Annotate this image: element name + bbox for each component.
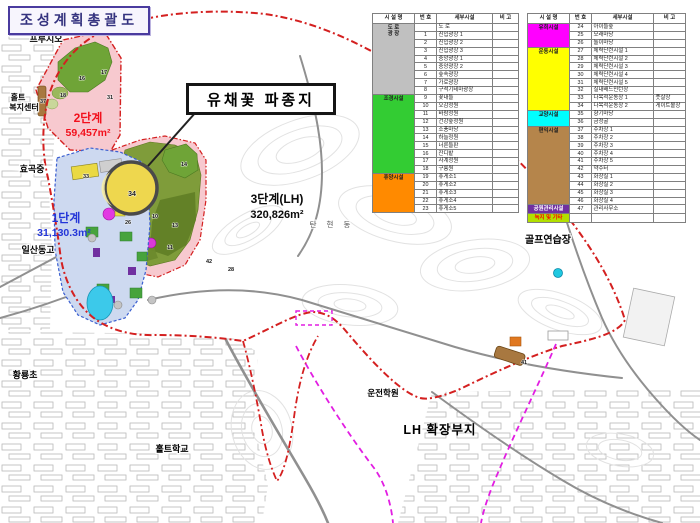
phase3-area-value: 320,826m² [250, 209, 304, 221]
legend-cell [493, 47, 519, 55]
legend-cell: 37 [570, 126, 592, 134]
legend-cell: 건강숲정원 [437, 118, 493, 126]
legend-cell [654, 166, 686, 174]
legend-cell [654, 110, 686, 118]
legend-cell: 43 [570, 173, 592, 181]
legend-cell: 체력단련시설 4 [592, 71, 654, 79]
legend-cell: 화장실 2 [592, 181, 654, 189]
legend-category: 공원관리시설 [528, 205, 570, 214]
legend-cell: 약수터 [592, 166, 654, 174]
label-hyogok-school: 효곡중 [20, 164, 45, 174]
legend-header: 번 호 [570, 14, 592, 24]
zone-number: 11 [167, 245, 173, 251]
legend-cell: 11 [415, 110, 437, 118]
legend-cell: 휴게소3 [437, 189, 493, 197]
legend-cell [654, 214, 686, 223]
legend-cell [654, 55, 686, 63]
legend-cell [493, 197, 519, 205]
legend-cell [493, 158, 519, 166]
legend-cell: 숲속광장 [437, 71, 493, 79]
legend-cell: 39 [570, 142, 592, 150]
legend-cell: 화장실 4 [592, 197, 654, 205]
legend-header: 비 고 [493, 14, 519, 24]
legend-cell [654, 181, 686, 189]
legend-cell [493, 118, 519, 126]
label-holt-school: 홀트학교 [155, 443, 188, 454]
legend-cell [493, 189, 519, 197]
legend-category: 편익시설 [528, 126, 570, 205]
legend-cell: 진입광장 1 [437, 31, 493, 39]
legend-cell [654, 79, 686, 87]
legend-cell: 17 [415, 158, 437, 166]
phase3-name: 3단계(LH) [251, 191, 304, 206]
legend-cell [493, 39, 519, 47]
legend-cell [493, 87, 519, 95]
legend-cell [570, 214, 592, 223]
legend-cell [493, 95, 519, 103]
legend-cell: 오감정원 [437, 102, 493, 110]
legend-header: 세부시설 [592, 14, 654, 24]
legend-cell: 화장실 1 [592, 173, 654, 181]
legend-cell: 30 [570, 71, 592, 79]
legend-category: 교양시설 [528, 110, 570, 126]
legend-cell: 사계정원 [437, 158, 493, 166]
legend-cell: 22 [415, 197, 437, 205]
legend-cell: 8 [415, 87, 437, 95]
legend-cell: 실내배드민턴장 [592, 87, 654, 95]
legend-cell: 6 [415, 71, 437, 79]
legend-cell: 주차장 1 [592, 126, 654, 134]
legend-cell: 휴게소5 [437, 205, 493, 213]
legend-cell: 모래마당 [592, 31, 654, 39]
phase1-area-value: 31,130.3m² [37, 227, 91, 239]
plan-map-page: 30 16 17 18 31 37 33 14 34 26 10 13 11 4… [0, 0, 700, 523]
legend-table-left: 시 설 명번 호세부시설비 고도 로 광 장도 로1진입광장 12진입광장 23… [372, 13, 519, 213]
legend-cell: 휴게소4 [437, 197, 493, 205]
legend-cell [493, 24, 519, 32]
legend-cell: 체력단련시설 3 [592, 63, 654, 71]
legend-cell: 32 [570, 87, 592, 95]
legend-cell: 게이트볼장 [654, 102, 686, 110]
legend-cell: 1 [415, 31, 437, 39]
legend-cell: 23 [415, 205, 437, 213]
legend-cell: 26 [570, 39, 592, 47]
legend-cell: 44 [570, 181, 592, 189]
legend-cell: 13 [415, 126, 437, 134]
legend-cell: 체력단련시설 1 [592, 47, 654, 55]
label-hwangnyong-school: 황룡초 [13, 369, 39, 380]
legend-cell: 5 [415, 63, 437, 71]
legend-cell: 3 [415, 47, 437, 55]
legend-cell: 금정굴 [592, 118, 654, 126]
legend-cell [493, 173, 519, 181]
legend-cell: 다목적운동장 2 [592, 102, 654, 110]
legend-cell: 27 [570, 47, 592, 55]
legend-cell: 놀이마당 [592, 39, 654, 47]
legend-cell: 2 [415, 39, 437, 47]
legend-cell: 하늘정원 [437, 134, 493, 142]
phase2-name: 2단계 [74, 110, 103, 125]
legend-cell: 20 [415, 181, 437, 189]
zone-number: 33 [83, 174, 89, 180]
legend-cell [654, 118, 686, 126]
legend-cell: 풋살장 [654, 95, 686, 103]
legend-cell [493, 79, 519, 87]
legend-cell [654, 173, 686, 181]
legend-cell: 36 [570, 118, 592, 126]
legend-cell: 7 [415, 79, 437, 87]
zone-number: 41 [521, 360, 527, 366]
facility-legend: 시 설 명번 호세부시설비 고도 로 광 장도 로1진입광장 12진입광장 23… [372, 13, 686, 223]
zone-number: 31 [107, 95, 113, 101]
legend-cell: 33 [570, 95, 592, 103]
legend-cell [654, 150, 686, 158]
legend-cell: 21 [415, 189, 437, 197]
legend-cell: 중앙광장 2 [437, 63, 493, 71]
legend-cell [493, 166, 519, 174]
legend-cell: 주차장 5 [592, 158, 654, 166]
legend-cell: 도 로 [437, 24, 493, 32]
legend-cell [654, 71, 686, 79]
label-driving-school: 운전학원 [367, 388, 398, 398]
legend-category: 녹지 및 기타 [528, 214, 570, 223]
lh-expansion-label: LH 확장부지 [403, 422, 476, 437]
zone-number: 17 [101, 70, 107, 76]
legend-cell [493, 31, 519, 39]
legend-table-right: 시 설 명번 호세부시설비 고유희시설24아이들숲25모래마당26놀이마당운동시… [527, 13, 686, 223]
legend-cell [493, 181, 519, 189]
legend-cell: 체력단련시설 5 [592, 79, 654, 87]
zone-number-34: 34 [128, 191, 136, 198]
legend-cell: 아이들숲 [592, 24, 654, 32]
legend-cell [654, 47, 686, 55]
legend-cell [654, 197, 686, 205]
zone-number: 18 [60, 93, 66, 99]
legend-cell: 관리사무소 [592, 205, 654, 214]
legend-cell [493, 126, 519, 134]
legend-cell [654, 134, 686, 142]
label-ilsandong-school: 일산동고 [21, 244, 54, 255]
legend-cell: 꽃내들 [437, 95, 493, 103]
legend-cell: 구석기테마광장 [437, 87, 493, 95]
legend-cell [654, 158, 686, 166]
zone-number: 14 [181, 162, 188, 168]
legend-cell [654, 31, 686, 39]
spring-marker [554, 269, 563, 278]
legend-category: 조경시설 [373, 95, 415, 174]
zone-number: 13 [172, 223, 178, 229]
se-facilities [494, 269, 675, 367]
legend-cell [493, 55, 519, 63]
phase1-name: 1단계 [52, 210, 81, 225]
legend-cell: 28 [570, 55, 592, 63]
legend-cell: 바람정원 [437, 110, 493, 118]
legend-header: 세부시설 [437, 14, 493, 24]
legend-cell: 진입광장 2 [437, 39, 493, 47]
legend-cell [493, 110, 519, 118]
legend-header: 시 설 명 [373, 14, 415, 24]
legend-cell: 체력단련시설 2 [592, 55, 654, 63]
legend-cell [654, 87, 686, 95]
legend-cell [493, 102, 519, 110]
label-golf-range: 골프연습장 [525, 233, 572, 246]
legend-cell: 10 [415, 102, 437, 110]
legend-cell: 주차장 4 [592, 150, 654, 158]
legend-cell: 휴게소2 [437, 181, 493, 189]
legend-cell: 46 [570, 197, 592, 205]
zone-number: 16 [79, 76, 85, 82]
legend-cell [493, 205, 519, 213]
page-title: 조성계획총괄도 [8, 6, 150, 35]
legend-cell: 16 [415, 150, 437, 158]
legend-cell: 휴게소1 [437, 173, 493, 181]
legend-cell: 31 [570, 79, 592, 87]
legend-cell: 진입광장 3 [437, 47, 493, 55]
legend-cell: 18 [415, 166, 437, 174]
legend-cell: 9 [415, 95, 437, 103]
legend-category: 휴양시설 [373, 173, 415, 212]
legend-cell: 주차장 3 [592, 142, 654, 150]
legend-header: 번 호 [415, 14, 437, 24]
legend-cell [654, 24, 686, 32]
legend-cell: 가로광장 [437, 79, 493, 87]
zone-number: 10 [152, 214, 158, 220]
legend-cell: 19 [415, 173, 437, 181]
legend-cell: 45 [570, 189, 592, 197]
legend-cell [415, 24, 437, 32]
phase2-area-value: 59,457m² [66, 127, 111, 139]
legend-cell: 향기마당 [592, 110, 654, 118]
legend-cell [493, 71, 519, 79]
legend-cell: 29 [570, 63, 592, 71]
legend-cell: 41 [570, 158, 592, 166]
legend-cell [493, 142, 519, 150]
legend-header: 시 설 명 [528, 14, 570, 24]
legend-cell: 구릉원 [437, 166, 493, 174]
zone-number: 26 [125, 220, 131, 226]
legend-cell: 38 [570, 134, 592, 142]
legend-cell [592, 214, 654, 223]
zone-number: 37 [40, 99, 46, 105]
legend-cell: 35 [570, 110, 592, 118]
legend-cell: 다목적운동장 1 [592, 95, 654, 103]
legend-cell [654, 39, 686, 47]
legend-cell: 주차장 2 [592, 134, 654, 142]
legend-header: 비 고 [654, 14, 686, 24]
legend-cell [654, 63, 686, 71]
legend-cell: 중앙광장 1 [437, 55, 493, 63]
legend-cell [493, 63, 519, 71]
legend-cell: 너른들판 [437, 142, 493, 150]
legend-cell: 화장실 3 [592, 189, 654, 197]
legend-cell [654, 189, 686, 197]
label-holt-welfare-1: 홀트 [11, 92, 26, 102]
legend-cell: 40 [570, 150, 592, 158]
legend-cell: 12 [415, 118, 437, 126]
legend-cell: 24 [570, 24, 592, 32]
legend-category: 운동시설 [528, 47, 570, 110]
legend-cell: 25 [570, 31, 592, 39]
legend-cell: 14 [415, 134, 437, 142]
legend-cell [654, 142, 686, 150]
legend-cell [654, 205, 686, 214]
label-holt-welfare-2: 복지센터 [9, 102, 38, 112]
legend-cell: 소풍마당 [437, 126, 493, 134]
legend-cell: 잔디밭 [437, 150, 493, 158]
legend-cell [654, 126, 686, 134]
label-tanhyeon-dong: 탄 현 동 [310, 219, 355, 229]
legend-cell [493, 134, 519, 142]
legend-category: 도 로 광 장 [373, 24, 415, 95]
rapeseed-callout: 유채꽃 파종지 [186, 83, 336, 115]
legend-cell: 4 [415, 55, 437, 63]
zone-number: 42 [206, 259, 212, 265]
legend-cell: 34 [570, 102, 592, 110]
legend-cell: 47 [570, 205, 592, 214]
legend-cell: 15 [415, 142, 437, 150]
legend-cell [493, 150, 519, 158]
legend-cell: 42 [570, 166, 592, 174]
zone-number: 28 [228, 267, 234, 273]
legend-category: 유희시설 [528, 24, 570, 48]
